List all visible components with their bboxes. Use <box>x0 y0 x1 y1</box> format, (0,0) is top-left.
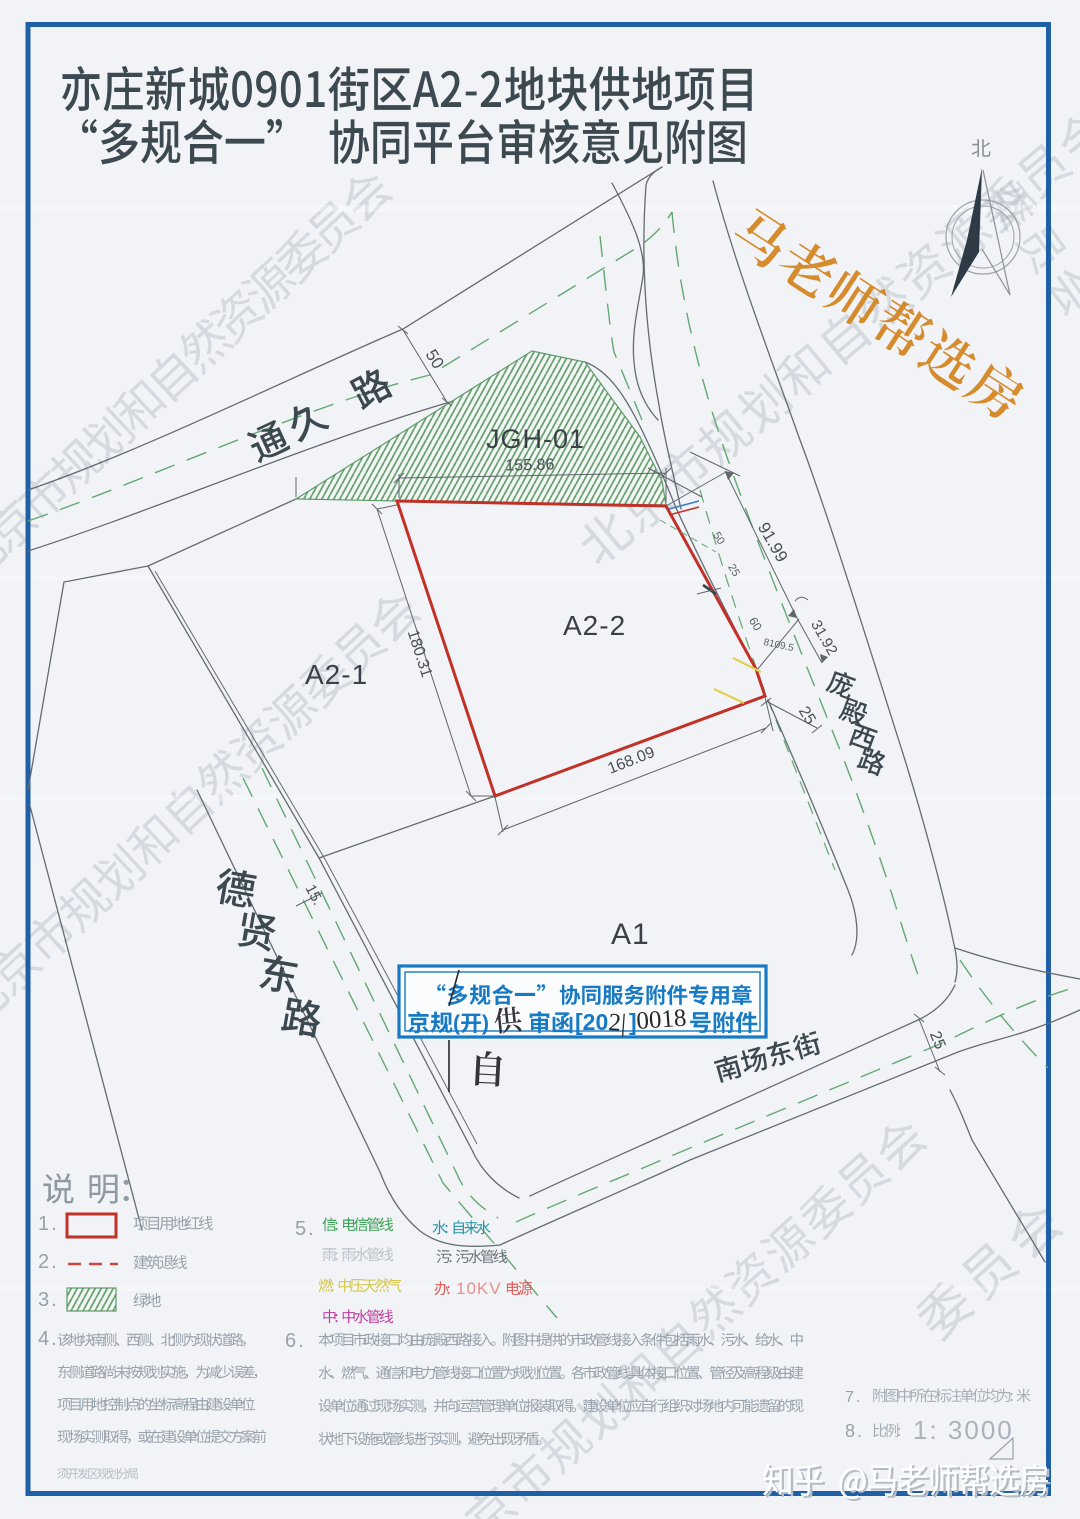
svg-text:JGH-01: JGH-01 <box>486 424 585 454</box>
svg-text:[20: [20 <box>575 1009 608 1035</box>
svg-text:4.: 4. <box>38 1328 59 1350</box>
svg-text:A1: A1 <box>611 918 650 951</box>
svg-text:2|: 2| <box>608 1009 627 1037</box>
svg-text:2.: 2. <box>38 1251 59 1273</box>
svg-text:(: ( <box>453 1012 460 1035</box>
svg-text:1.: 1. <box>38 1213 59 1235</box>
svg-text:0018: 0018 <box>636 1005 688 1035</box>
svg-text:3.: 3. <box>38 1289 59 1311</box>
svg-text:A2-2: A2-2 <box>563 610 626 641</box>
svg-text:A2-1: A2-1 <box>305 659 368 690</box>
svg-text:): ) <box>482 1012 489 1035</box>
svg-text:155.86: 155.86 <box>505 456 554 474</box>
svg-text:10KV: 10KV <box>456 1279 502 1298</box>
svg-text:1: 3000: 1: 3000 <box>913 1415 1014 1445</box>
svg-text:6.: 6. <box>285 1330 306 1352</box>
svg-text:8.: 8. <box>845 1421 864 1441</box>
svg-text:7.: 7. <box>845 1389 862 1406</box>
svg-text:5.: 5. <box>295 1218 316 1240</box>
